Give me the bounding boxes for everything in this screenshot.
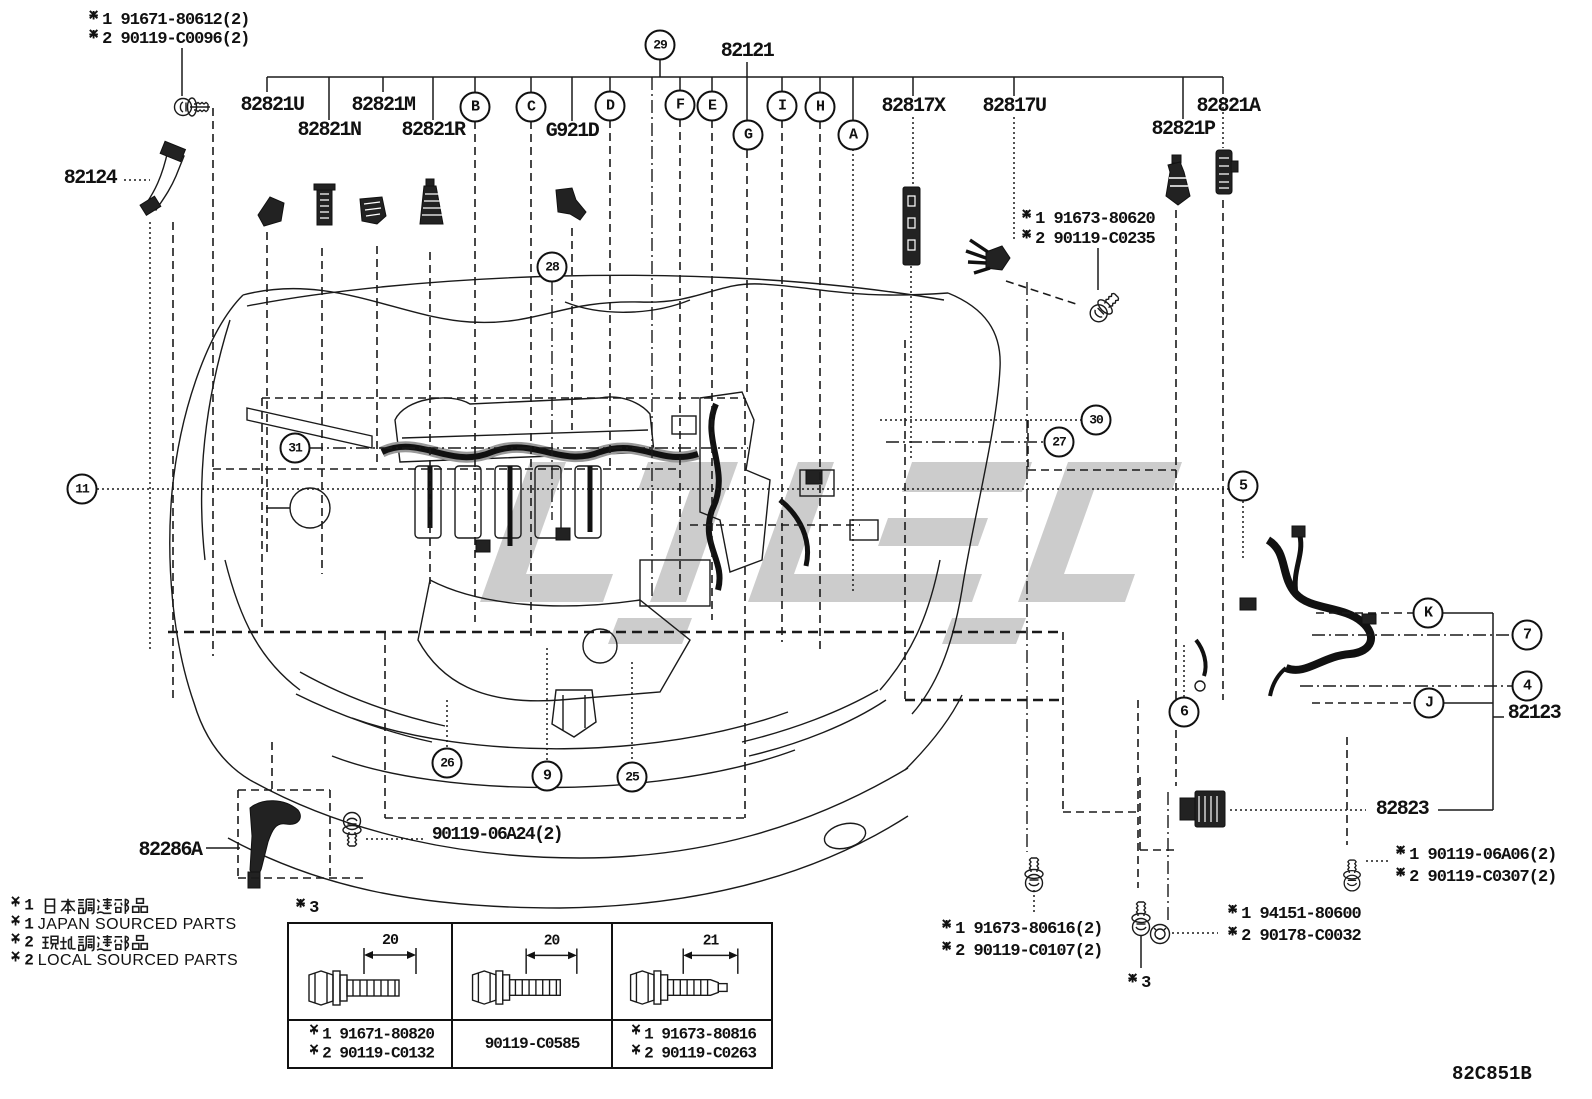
bolt-part-numbers-1: 1 91671-80820 2 90119-C0132	[288, 1020, 452, 1068]
reference-mark-icon	[8, 933, 23, 948]
callout-number-27: 27	[1044, 427, 1075, 458]
bolt-cell-3: 21	[612, 923, 772, 1020]
legend-line-3: 2	[8, 933, 152, 952]
watermark	[480, 462, 1182, 644]
legend-line-2: 1 JAPAN SOURCED PARTS	[8, 915, 237, 934]
reference-mark-icon	[8, 896, 23, 911]
legend-en-text-1: JAPAN SOURCED PARTS	[38, 916, 237, 934]
note-right-2: 2 90119-C0235	[1018, 229, 1155, 248]
drawing-code: 82C851B	[1452, 1063, 1532, 1085]
part-label-90119-06A24: 90119-06A24(2)	[432, 826, 562, 844]
callout-letter-j: J	[1414, 688, 1445, 719]
part-label-82286A: 82286A	[138, 841, 201, 861]
note-top-left-1: 1 91671-80612(2)	[85, 10, 249, 29]
note-bottom-right-c2: 2 90119-C0107(2)	[938, 941, 1102, 960]
callout-letter-c: C	[516, 92, 547, 123]
part-label-G921D: G921D	[546, 122, 599, 142]
note-ref3: 3	[1124, 973, 1150, 992]
note-right-1: 1 91673-80620	[1018, 209, 1155, 228]
reference-mark-icon	[1392, 867, 1408, 883]
part-label-82821P: 82821P	[1151, 120, 1214, 140]
svg-text:20: 20	[382, 932, 399, 949]
bolt-table-ref-mark: 3	[292, 898, 318, 917]
reference-mark-icon	[628, 1025, 643, 1040]
reference-mark-icon	[1018, 229, 1034, 245]
reference-mark-icon	[1224, 926, 1240, 942]
reference-mark-icon	[8, 915, 23, 930]
callout-number-7: 7	[1512, 620, 1543, 651]
reference-mark-icon	[628, 1044, 643, 1059]
reference-mark-icon	[85, 29, 101, 45]
callout-number-5: 5	[1228, 471, 1259, 502]
legend-jp-text-1	[38, 897, 152, 915]
part-label-82821A: 82821A	[1196, 97, 1259, 117]
note-bottom-right-a1: 1 90119-06A06(2)	[1392, 845, 1556, 864]
reference-mark-icon	[1392, 845, 1408, 861]
reference-mark-icon	[306, 1025, 321, 1040]
reference-mark-icon	[306, 1044, 321, 1059]
legend-en-text-2: LOCAL SOURCED PARTS	[38, 952, 238, 970]
callout-letter-h: H	[805, 92, 836, 123]
callout-letter-g: G	[733, 120, 764, 151]
callout-letter-f: F	[665, 90, 696, 121]
svg-text:21: 21	[703, 934, 720, 950]
callout-number-11: 11	[67, 474, 98, 505]
callout-number-26: 26	[432, 748, 463, 779]
part-label-82817U: 82817U	[982, 97, 1045, 117]
screw-icon	[1344, 860, 1361, 891]
reference-mark-icon	[85, 10, 101, 26]
note-bottom-right-a2: 2 90119-C0307(2)	[1392, 867, 1556, 886]
callout-letter-i: I	[767, 91, 798, 122]
part-label-82124: 82124	[64, 169, 117, 189]
part-label-82817X: 82817X	[881, 97, 944, 117]
callout-number-28: 28	[537, 252, 568, 283]
legend-line-1: 1	[8, 896, 152, 915]
callout-number-4: 4	[1512, 671, 1543, 702]
callout-number-25: 25	[617, 762, 648, 793]
parts-diagram: 1 91671-80612(2) 2 90119-C0096(2) 82124 …	[0, 0, 1592, 1099]
callout-number-31: 31	[280, 433, 311, 464]
reference-mark-icon	[292, 898, 308, 914]
callout-number-9: 9	[532, 761, 563, 792]
callout-letter-a: A	[838, 120, 869, 151]
callout-letter-b: B	[460, 92, 491, 123]
part-82124-drawing	[140, 141, 185, 215]
reference-mark-icon	[938, 941, 954, 957]
reference-mark-icon	[8, 951, 23, 966]
part-label-82821U: 82821U	[240, 96, 303, 116]
nut-icon	[1151, 925, 1170, 944]
callout-letter-k: K	[1413, 598, 1444, 629]
legend-line-4: 2 LOCAL SOURCED PARTS	[8, 951, 238, 970]
callout-letter-e: E	[697, 91, 728, 122]
part-label-82821N: 82821N	[297, 121, 360, 141]
screw-icon	[1025, 858, 1043, 892]
screw-icon	[1132, 902, 1150, 936]
note-top-left-2: 2 90119-C0096(2)	[85, 29, 249, 48]
callout-number-6: 6	[1169, 697, 1200, 728]
part-label-82123: 82123	[1508, 704, 1561, 724]
callout-number-29: 29	[645, 30, 676, 61]
reference-mark-icon	[1224, 904, 1240, 920]
part-label-82121: 82121	[721, 42, 774, 62]
bolt-icon	[343, 813, 361, 847]
callout-letter-d: D	[595, 91, 626, 122]
part-82286A-drawing	[248, 801, 300, 888]
note-bottom-right-b2: 2 90178-C0032	[1224, 926, 1361, 945]
note-bottom-right-b1: 1 94151-80600	[1224, 904, 1361, 923]
note-bottom-right-c1: 1 91673-80616(2)	[938, 919, 1102, 938]
bolt-part-numbers-2: 90119-C0585	[452, 1020, 612, 1068]
legend-jp-text-2	[38, 934, 152, 952]
part-label-82821M: 82821M	[351, 96, 414, 116]
callout-number-30: 30	[1081, 405, 1112, 436]
bolt-cell-1: 20	[288, 923, 452, 1020]
svg-text:20: 20	[544, 934, 560, 950]
reference-mark-icon	[1018, 209, 1034, 225]
part-label-82821R: 82821R	[401, 121, 464, 141]
bolt-icon	[1086, 289, 1122, 325]
reference-mark-icon	[938, 919, 954, 935]
part-label-82823: 82823	[1376, 800, 1429, 820]
reference-mark-icon	[1124, 973, 1140, 989]
bolt-table: 20 20	[287, 922, 773, 1069]
bolt-part-numbers-3: 1 91673-80816 2 90119-C0263	[612, 1020, 772, 1068]
ref-mark: 2	[8, 951, 34, 969]
bolt-cell-2: 20	[452, 923, 612, 1020]
